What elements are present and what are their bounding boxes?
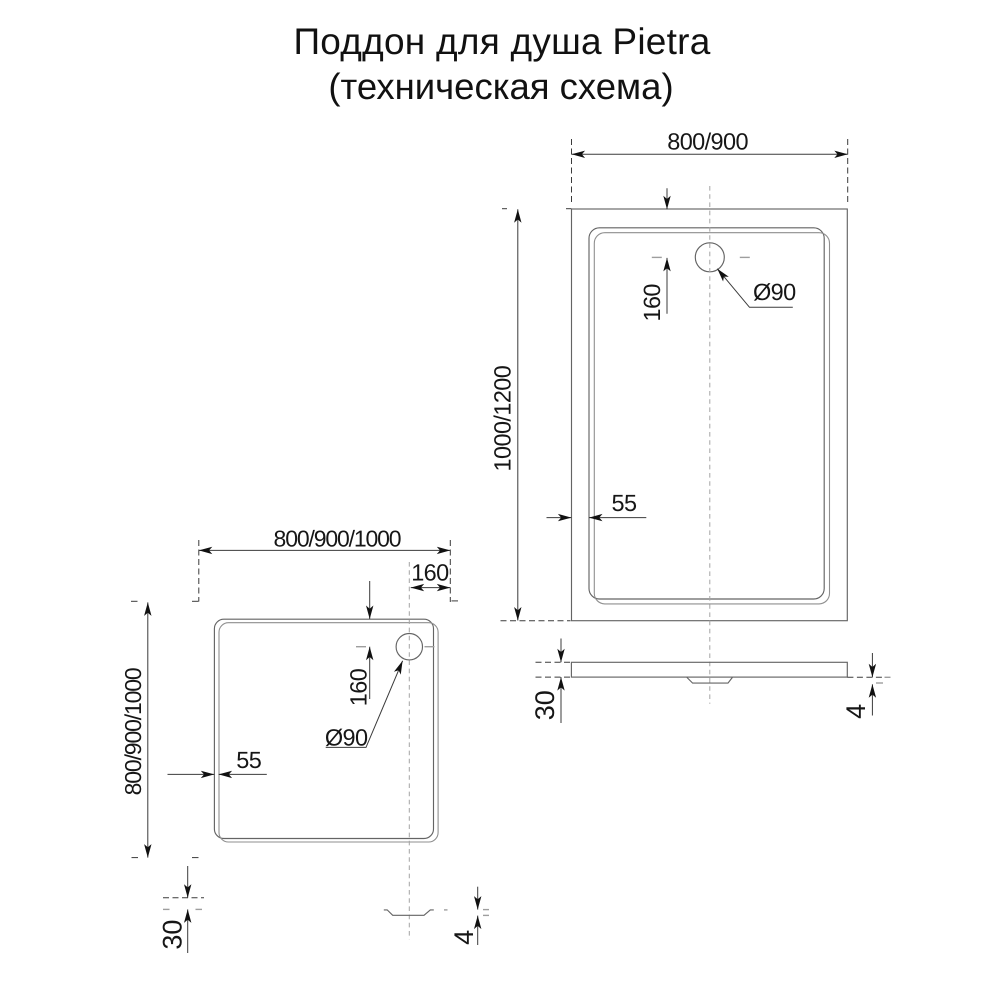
svg-text:55: 55 [612,490,637,516]
svg-text:Ø90: Ø90 [753,279,796,305]
svg-text:Поддон для душа Pietra: Поддон для душа Pietra [293,21,710,62]
svg-text:4: 4 [449,930,479,945]
svg-text:Ø90: Ø90 [325,724,368,750]
svg-text:1000/1200: 1000/1200 [490,365,516,471]
svg-text:800/900/1000: 800/900/1000 [274,526,401,552]
svg-text:(техническая схема): (техническая схема) [328,66,673,107]
svg-text:55: 55 [236,747,261,773]
svg-text:800/900/1000: 800/900/1000 [120,668,146,795]
svg-text:160: 160 [346,668,372,706]
svg-text:30: 30 [157,920,187,950]
svg-text:160: 160 [639,284,665,322]
svg-text:800/900: 800/900 [667,128,748,154]
svg-text:4: 4 [841,704,871,719]
svg-text:30: 30 [530,690,560,720]
svg-text:160: 160 [411,559,449,585]
